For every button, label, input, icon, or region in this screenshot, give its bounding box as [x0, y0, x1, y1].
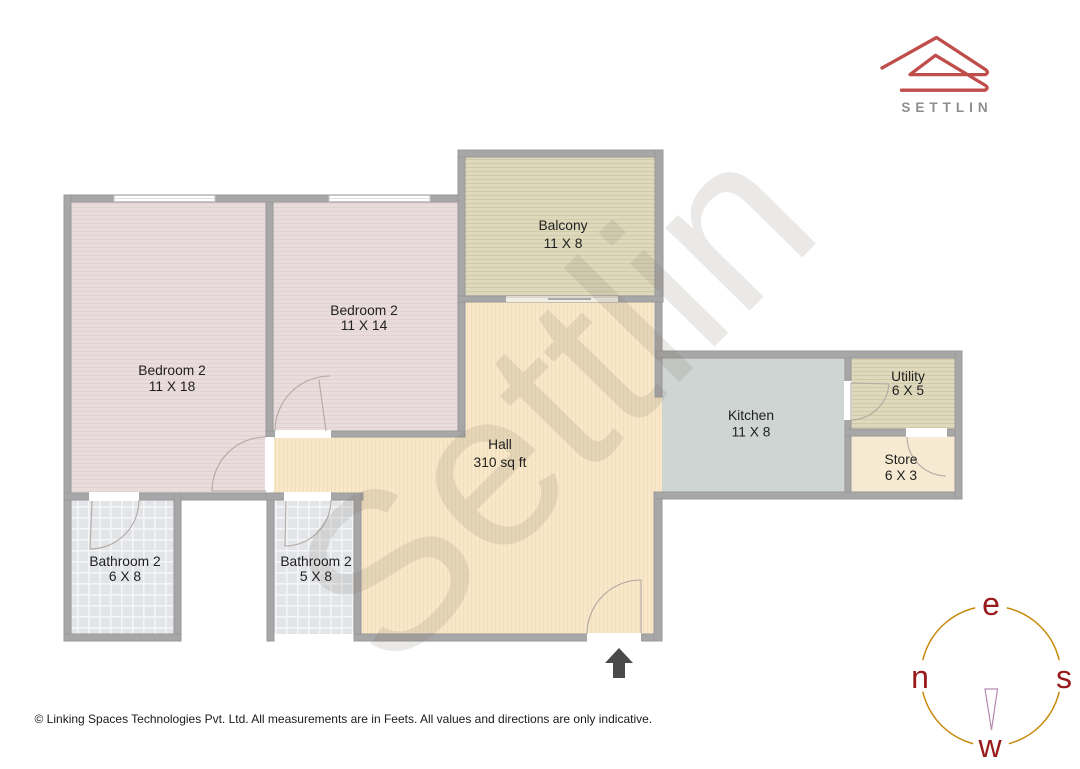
svg-text:6 X 3: 6 X 3: [885, 468, 918, 483]
svg-text:Hall: Hall: [488, 437, 512, 452]
svg-text:11 X 8: 11 X 8: [544, 236, 583, 251]
svg-text:e: e: [982, 586, 1000, 622]
svg-text:11 X 14: 11 X 14: [341, 318, 388, 333]
svg-text:Bathroom 2: Bathroom 2: [89, 554, 160, 569]
svg-text:Kitchen: Kitchen: [728, 408, 774, 423]
svg-text:w: w: [977, 728, 1002, 764]
svg-text:Bedroom 2: Bedroom 2: [330, 303, 398, 318]
svg-text:5 X 8: 5 X 8: [300, 569, 333, 584]
svg-text:s: s: [1056, 659, 1072, 695]
svg-text:© Linking Spaces Technologies: © Linking Spaces Technologies Pvt. Ltd. …: [35, 712, 653, 726]
svg-text:11 X 8: 11 X 8: [732, 425, 771, 440]
svg-text:Balcony: Balcony: [538, 218, 587, 233]
svg-text:Store: Store: [885, 452, 918, 467]
svg-text:Utility: Utility: [891, 369, 925, 384]
svg-text:6 X 8: 6 X 8: [109, 569, 142, 584]
svg-text:Bedroom 2: Bedroom 2: [138, 363, 206, 378]
svg-text:SETTLIN: SETTLIN: [901, 100, 992, 115]
svg-text:310 sq ft: 310 sq ft: [474, 455, 527, 470]
svg-text:n: n: [911, 659, 929, 695]
svg-text:11 X 18: 11 X 18: [149, 379, 196, 394]
svg-text:Bathroom 2: Bathroom 2: [280, 554, 351, 569]
svg-text:6 X 5: 6 X 5: [892, 383, 925, 398]
